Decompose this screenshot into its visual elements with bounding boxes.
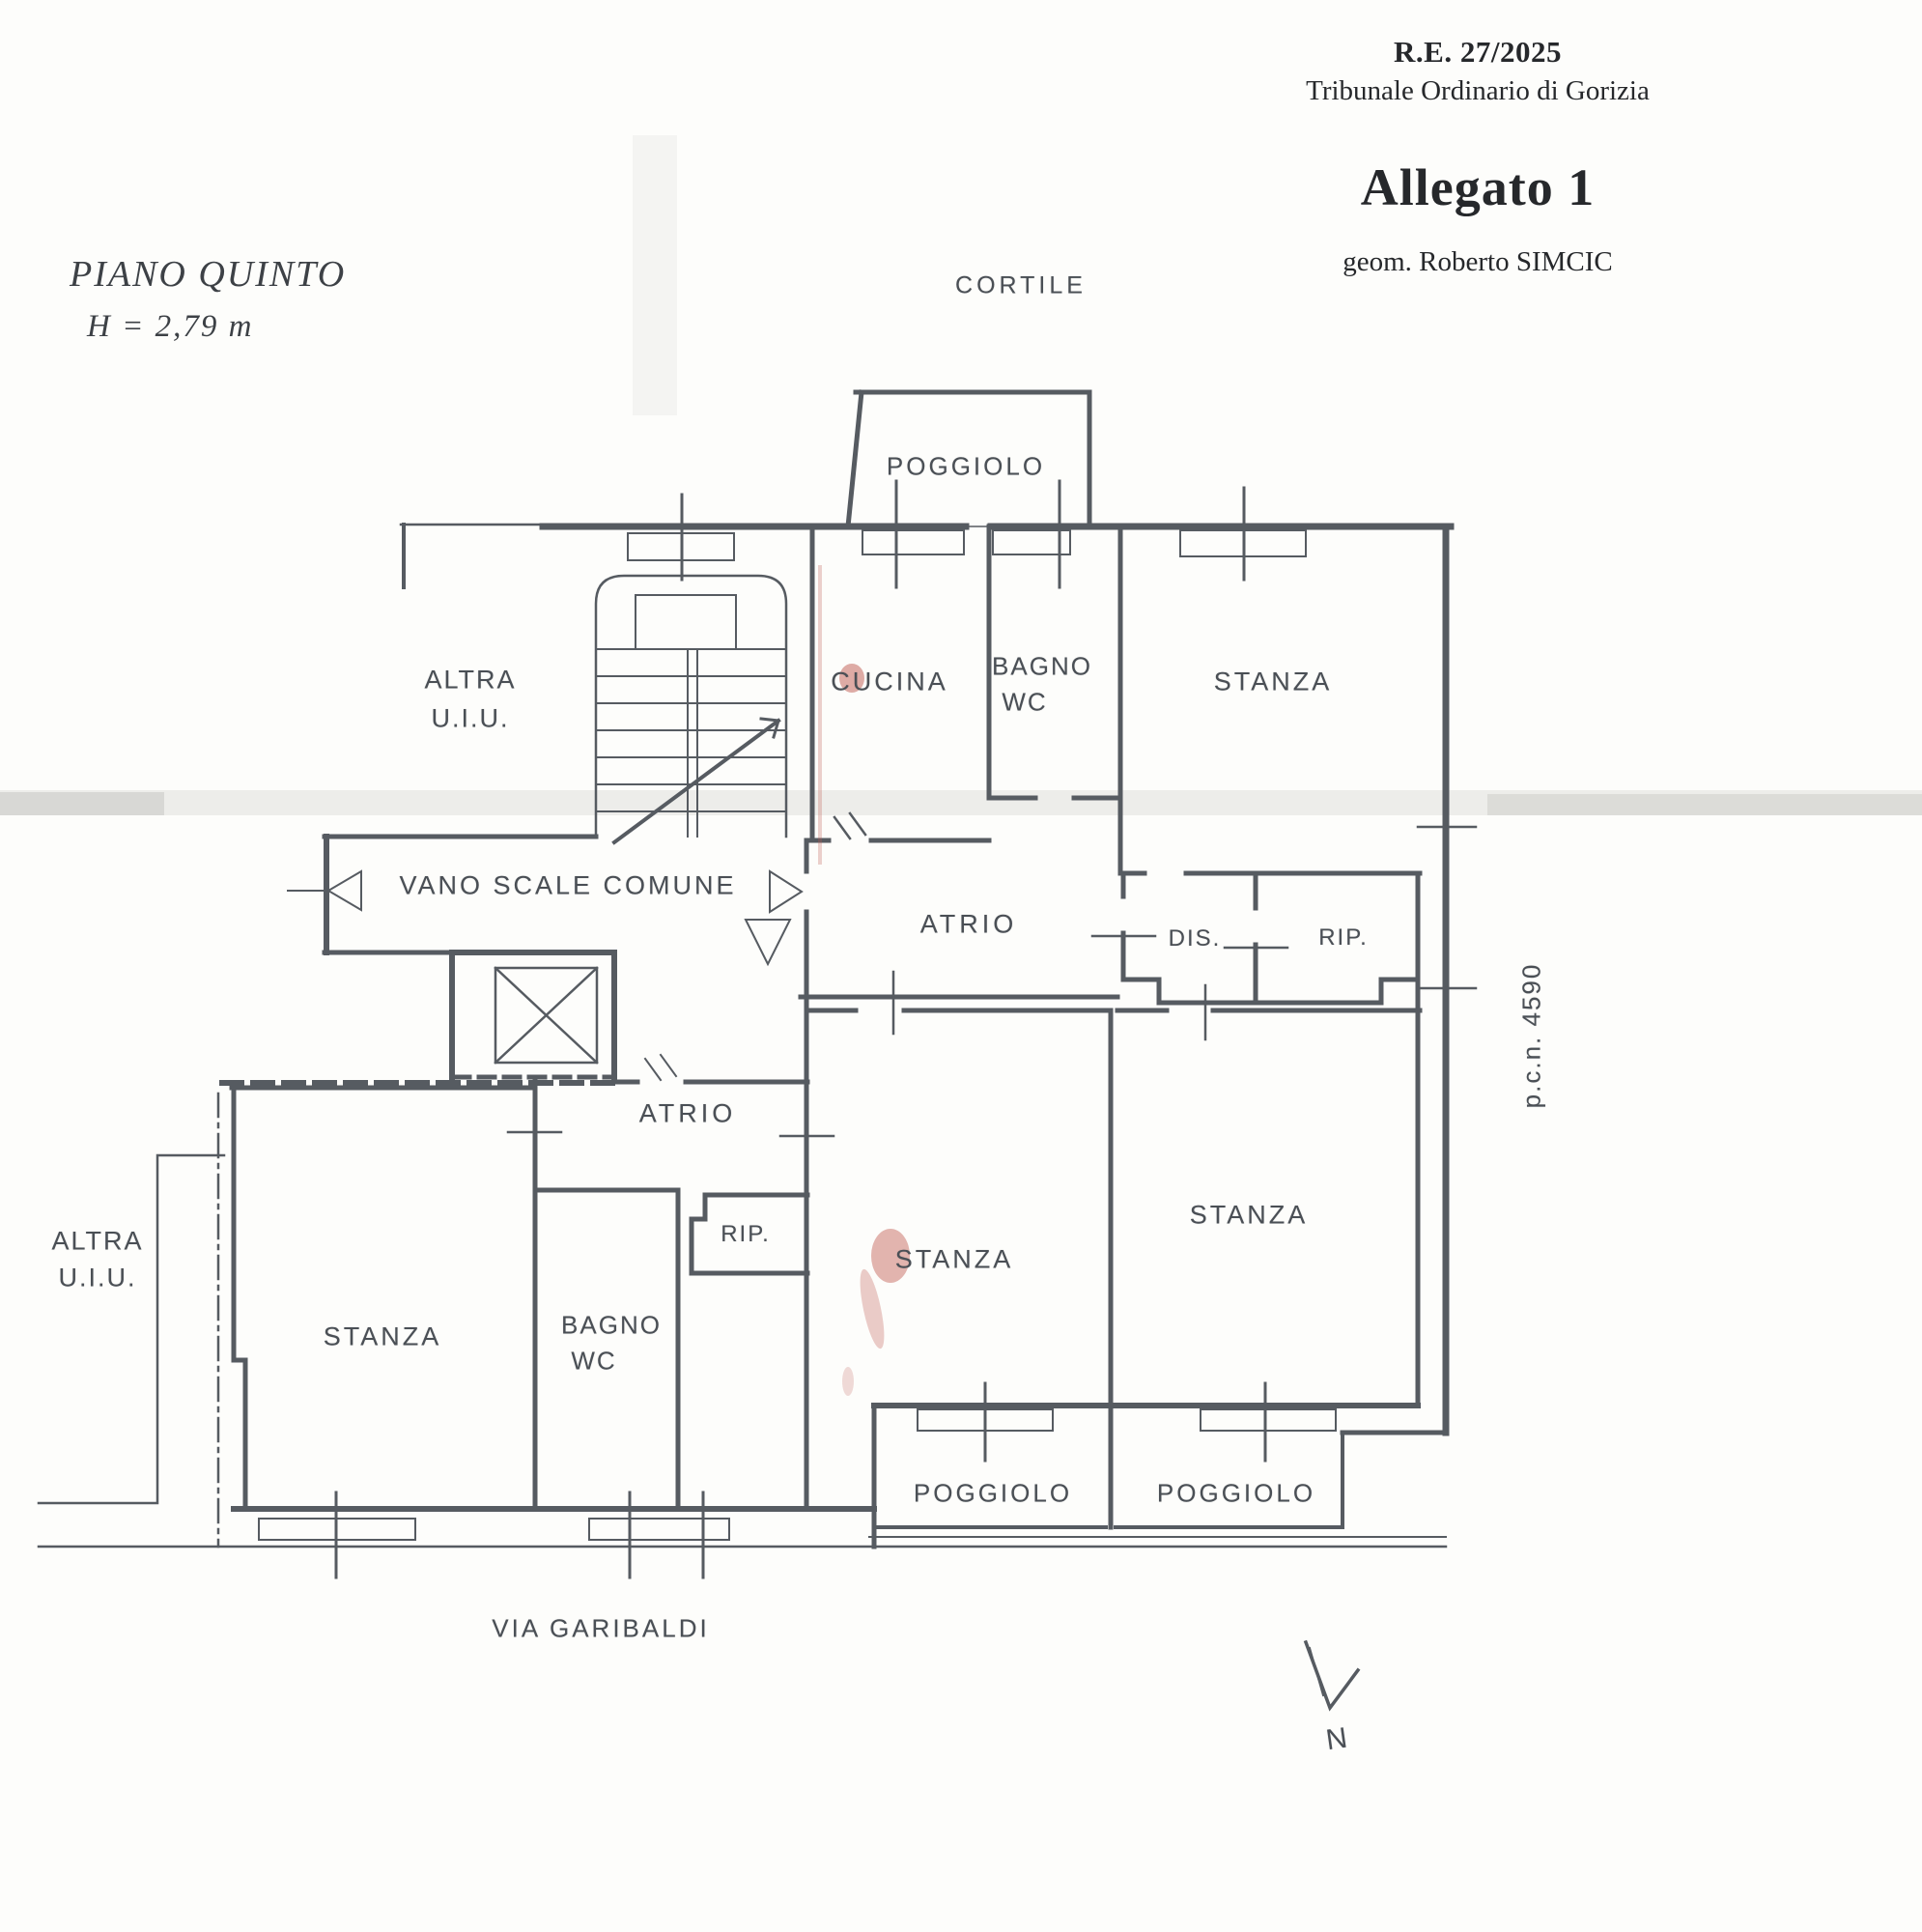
stair-direction-icon [746, 920, 790, 964]
label-vano-scale-comune: VANO SCALE COMUNE [399, 871, 736, 901]
label-poggiolo-bottom-left: POGGIOLO [914, 1479, 1072, 1509]
label-rip-lower: RIP. [721, 1221, 771, 1248]
scanned-floor-plan-page: R.E. 27/2025 Tribunale Ordinario di Gori… [0, 0, 1922, 1932]
label-stanza-top-right: STANZA [1214, 668, 1333, 697]
elevator-shaft [452, 952, 614, 1080]
window-marks-top [628, 481, 1476, 988]
label-altra-uiu-lower-2: U.I.U. [58, 1264, 136, 1293]
label-poggiolo-bottom-right: POGGIOLO [1157, 1479, 1315, 1509]
outer-walls [401, 525, 1451, 1433]
label-via-garibaldi: VIA GARIBALDI [492, 1614, 709, 1644]
label-pcn-4590: p.c.n. 4590 [1517, 963, 1547, 1109]
label-stanza-center: STANZA [895, 1245, 1014, 1275]
label-stanza-left: STANZA [324, 1322, 442, 1352]
door-swing-icon-right [770, 871, 802, 912]
label-dis: DIS. [1169, 925, 1222, 952]
label-cortile: CORTILE [955, 272, 1087, 300]
label-altra-uiu-upper-2: U.I.U. [431, 704, 509, 734]
label-atrio-lower: ATRIO [639, 1099, 737, 1129]
label-poggiolo-top: POGGIOLO [887, 452, 1045, 482]
lower-door-ticks [508, 1132, 834, 1136]
label-bagno-lower-2: WC [571, 1347, 616, 1377]
label-cucina: CUCINA [831, 668, 948, 697]
door-swing-icon-left [328, 871, 361, 910]
north-arrow-icon [1306, 1642, 1358, 1708]
label-bagno-upper-2: WC [1002, 688, 1047, 718]
label-atrio-upper: ATRIO [920, 910, 1018, 940]
label-altra-uiu-lower-1: ALTRA [51, 1227, 143, 1257]
label-bagno-lower-1: BAGNO [561, 1311, 662, 1341]
label-north-letter: N [1324, 1722, 1349, 1758]
label-rip-upper: RIP. [1318, 924, 1369, 952]
label-stanza-right: STANZA [1190, 1201, 1309, 1231]
label-bagno-upper-1: BAGNO [992, 652, 1092, 682]
label-altra-uiu-upper-1: ALTRA [424, 666, 516, 696]
